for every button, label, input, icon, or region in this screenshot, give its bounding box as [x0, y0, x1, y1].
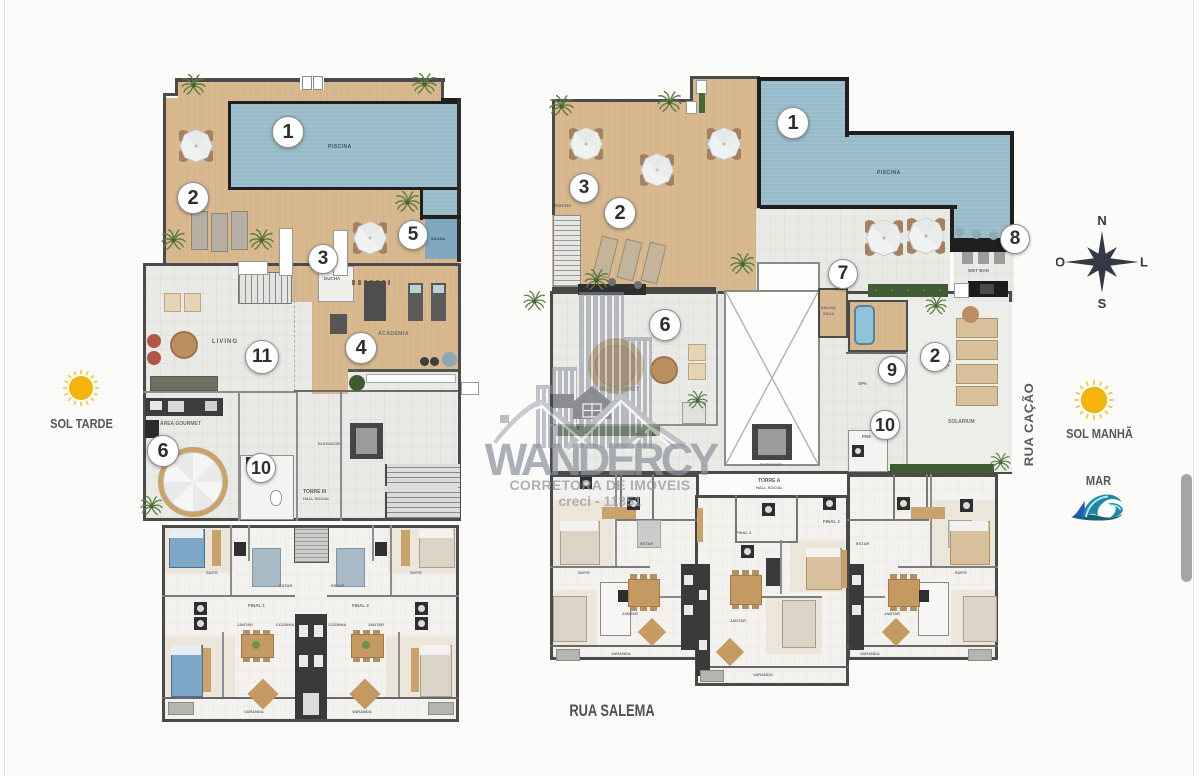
svg-text:N: N	[1097, 213, 1106, 228]
svg-text:S: S	[1098, 296, 1107, 311]
svg-text:L: L	[1140, 255, 1148, 270]
svg-text:O: O	[1056, 255, 1065, 270]
